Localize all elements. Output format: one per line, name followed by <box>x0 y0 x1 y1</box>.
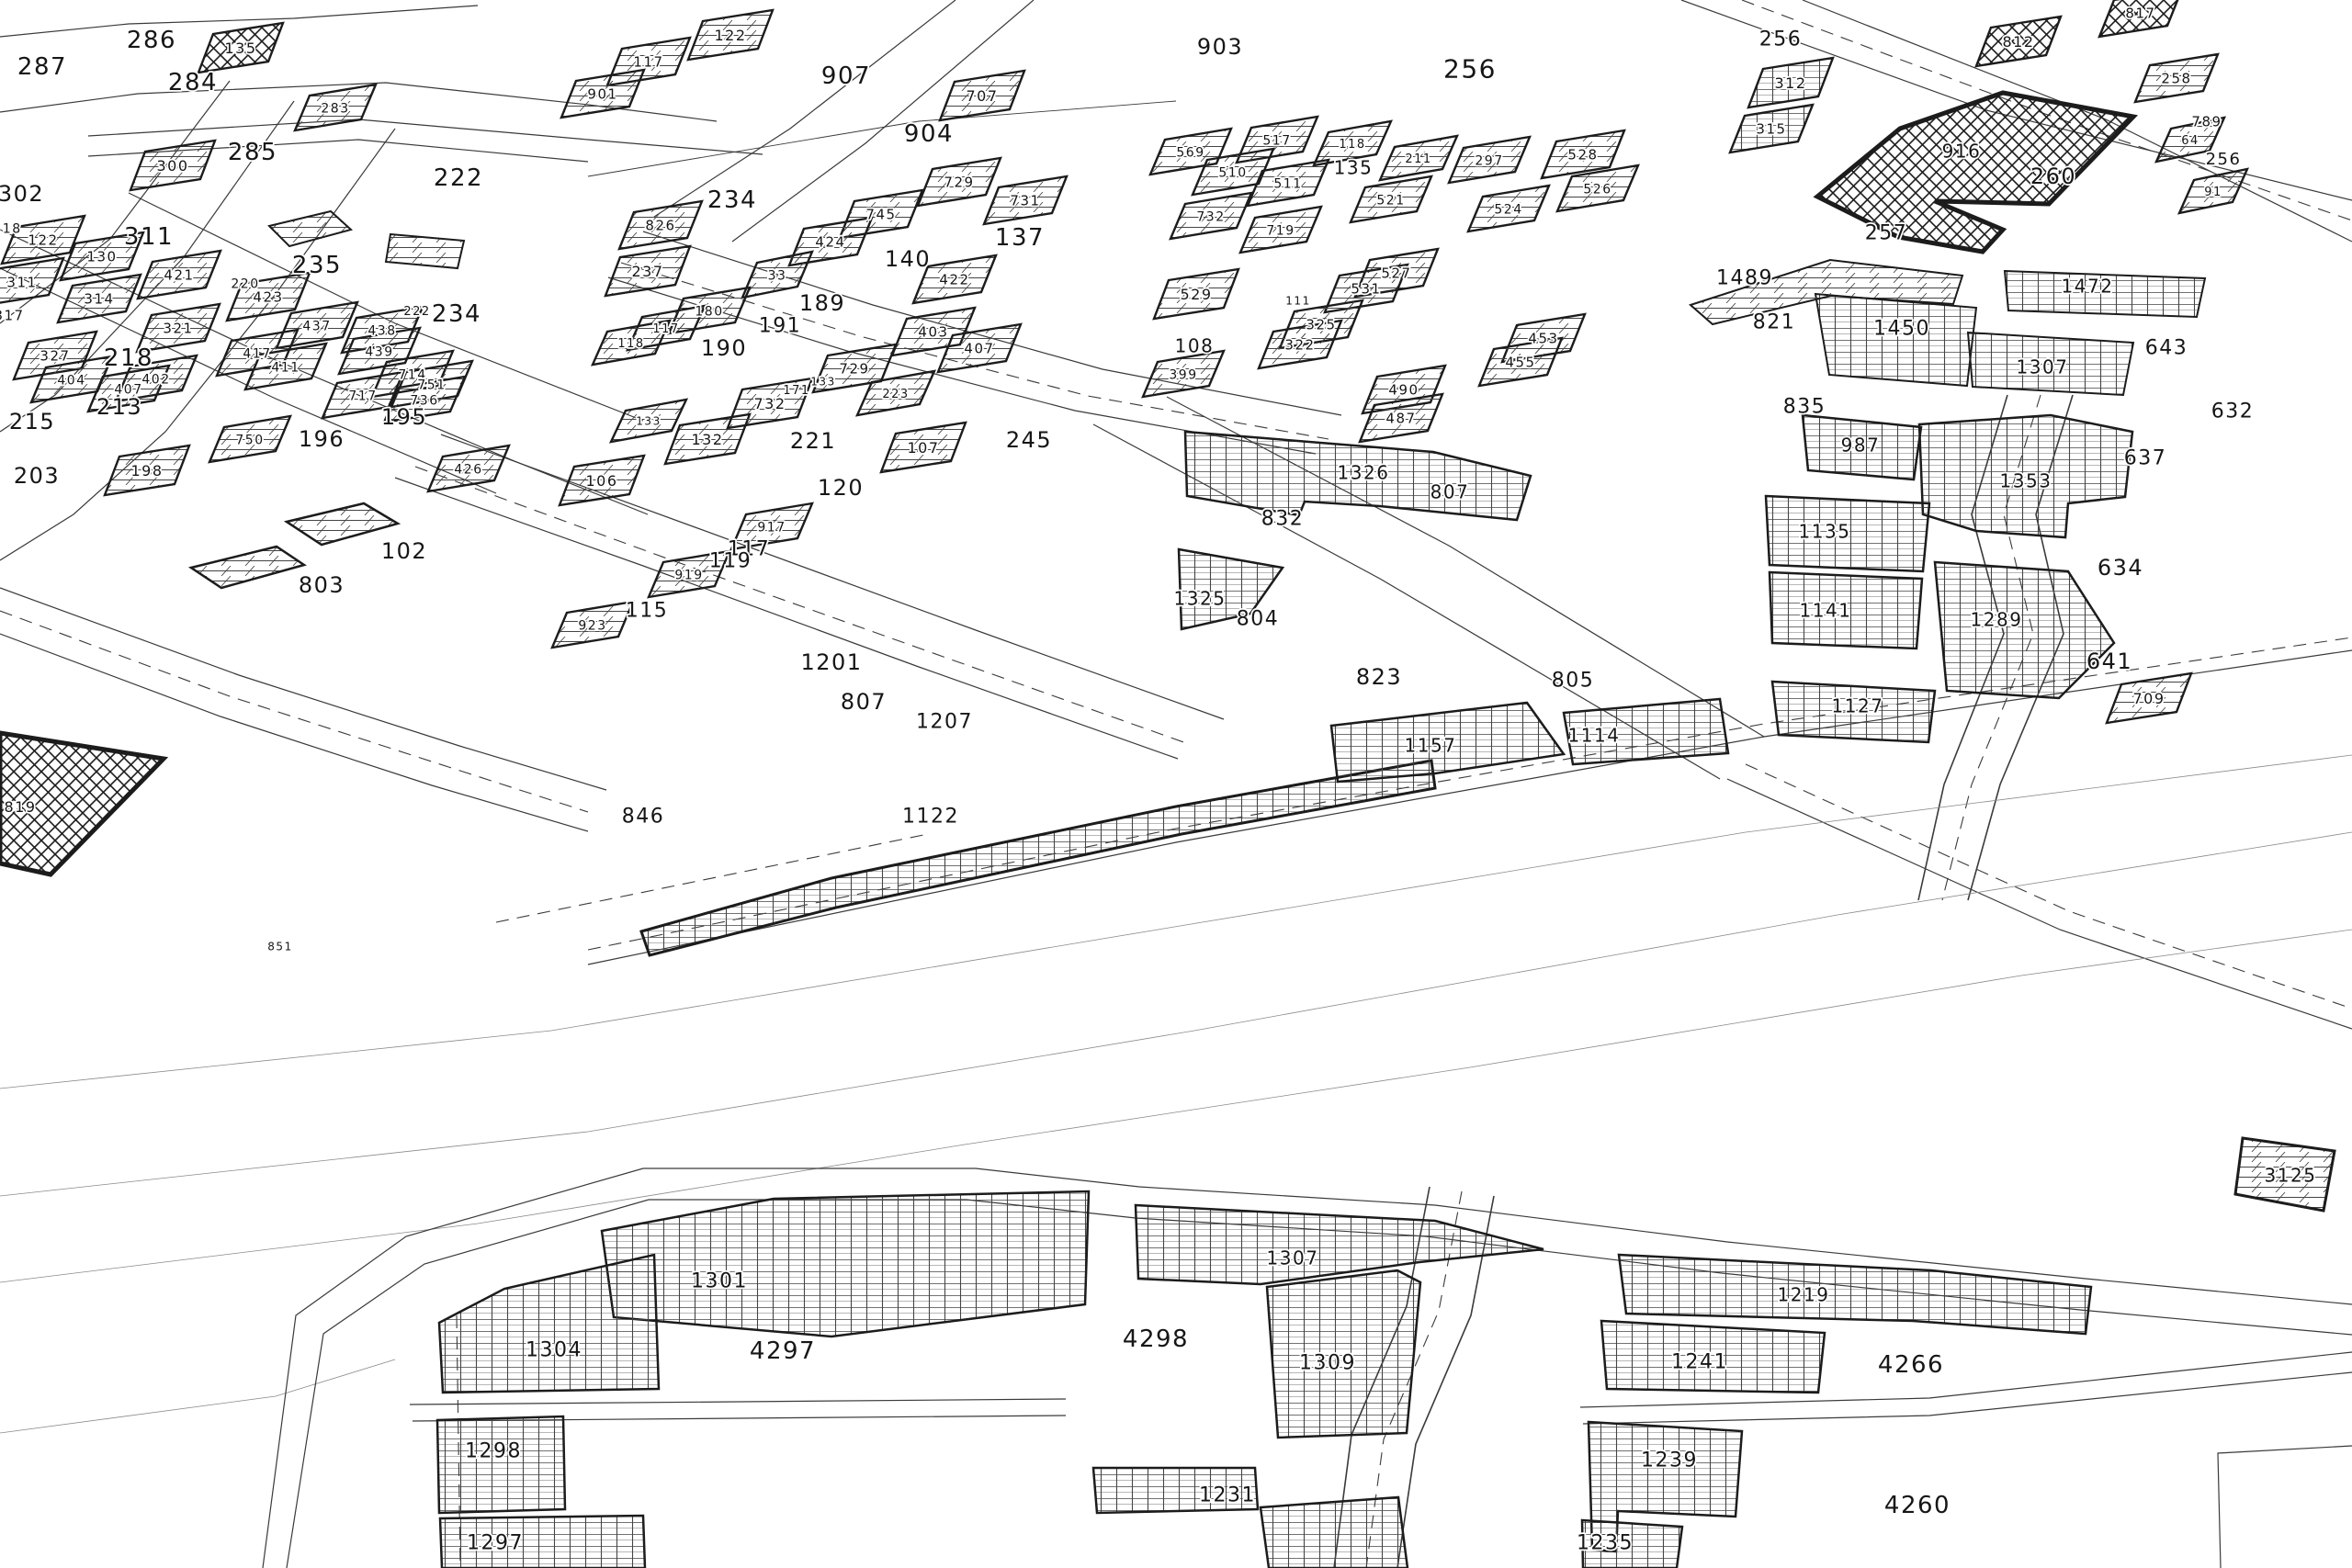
parcel-label: 907 <box>821 62 871 90</box>
parcel-label: 64 <box>2181 134 2199 148</box>
parcel-label: 4260 <box>1884 1492 1951 1519</box>
parcel-label: 421 <box>164 267 194 284</box>
parcel-label: 3125 <box>2265 1165 2317 1187</box>
parcel-shape <box>1935 562 2114 698</box>
parcel-label: 527 <box>1381 265 1411 282</box>
parcel-label: 745 <box>865 207 896 223</box>
parcel-label: 1157 <box>1405 735 1457 757</box>
parcel-label: 826 <box>645 218 675 234</box>
road-line <box>410 1399 1066 1404</box>
parcel-label: 311 <box>6 275 37 291</box>
parcel-label: 1207 <box>916 710 973 733</box>
parcel-label: 222 <box>403 305 430 319</box>
parcel-label: 916 <box>1942 141 1982 163</box>
parcel-label: 189 <box>799 290 845 316</box>
parcel-label: 91 <box>2204 186 2222 199</box>
parcel-shape <box>641 761 1435 955</box>
parcel-label: 437 <box>302 319 331 333</box>
parcel-label: 117 <box>652 322 679 336</box>
parcel-label: 424 <box>815 234 845 251</box>
parcel-label: 403 <box>918 324 948 341</box>
parcel-label: 302 <box>0 181 44 207</box>
parcel-label: 569 <box>1176 145 1204 160</box>
parcel-shape <box>439 1255 659 1393</box>
parcel-label: 511 <box>1273 176 1302 191</box>
parcel-shape <box>437 1416 565 1513</box>
parcel-label: 835 <box>1783 395 1826 418</box>
parcel-label: 300 <box>156 157 188 175</box>
road-line <box>588 101 1176 176</box>
parcel-label: 327 <box>40 348 70 365</box>
parcel-label: 106 <box>585 472 617 490</box>
parcel-label: 510 <box>1218 165 1247 180</box>
parcel-label: 707 <box>966 87 998 105</box>
parcel-label: 107 <box>907 439 939 457</box>
parcel-label: 1326 <box>1338 462 1390 484</box>
parcel-label: 135 <box>1334 157 1374 179</box>
parcel-label: 729 <box>839 361 869 378</box>
parcel-label: 102 <box>381 538 427 564</box>
parcel-shape <box>1619 1255 2091 1334</box>
parcel-label: 1241 <box>1671 1350 1728 1373</box>
parcel-label: 315 <box>1756 121 1786 138</box>
parcel-label: 260 <box>2030 164 2076 189</box>
parcel-label: 717 <box>348 389 377 403</box>
parcel-label: 987 <box>1841 434 1881 457</box>
parcel-label: 455 <box>1505 355 1535 371</box>
parcel-label: 171 <box>783 384 809 398</box>
parcel-label: 709 <box>2132 690 2165 707</box>
parcel-label: 1141 <box>1800 600 1852 622</box>
parcel-label: 130 <box>86 249 117 265</box>
parcel-label: 234 <box>432 300 481 328</box>
parcel-label: 115 <box>626 599 669 622</box>
parcel-label: 1307 <box>2017 356 2069 378</box>
parcel-label: 4266 <box>1878 1351 1944 1379</box>
parcel-label: 191 <box>759 314 802 337</box>
parcel-label: 257 <box>1865 221 1908 244</box>
parcel-label: 287 <box>17 53 67 81</box>
parcel-label: 286 <box>127 27 176 54</box>
parcel-label: 198 <box>130 462 163 479</box>
parcel-label: 821 <box>1753 310 1796 333</box>
parcel-label: 426 <box>454 462 482 477</box>
parcel-label: 732 <box>1196 209 1225 224</box>
parcel-label: 807 <box>1430 481 1470 503</box>
parcel-label: 1325 <box>1174 588 1227 610</box>
parcel-label: 399 <box>1169 367 1197 382</box>
cadastral-map[interactable]: 2861352872842832853002223021181223111304… <box>0 0 2352 1568</box>
parcel-label: 284 <box>168 69 218 96</box>
contour-line <box>0 755 2352 1089</box>
parcel-label: 1289 <box>1971 609 2023 631</box>
parcel-label: 1298 <box>465 1439 522 1462</box>
parcel-label: 314 <box>84 291 114 308</box>
parcel-label: 422 <box>939 272 969 288</box>
parcel-label: 312 <box>1774 74 1806 92</box>
parcel-label: 732 <box>753 395 786 412</box>
parcel-label: 122 <box>28 232 58 249</box>
parcel-label: 1489 <box>1716 266 1773 289</box>
parcel-label: 221 <box>790 428 836 454</box>
parcel-label: 529 <box>1180 286 1212 303</box>
parcel-label: 524 <box>1494 202 1522 217</box>
parcel-label: 317 <box>0 308 25 324</box>
parcel-label: 487 <box>1385 411 1416 427</box>
map-canvas: 2861352872842832853002223021181223111304… <box>0 0 2352 1568</box>
parcel-label: 1219 <box>1778 1284 1830 1306</box>
parcel-shape <box>386 234 464 268</box>
parcel-label: 641 <box>2086 649 2132 674</box>
parcel-label: 1239 <box>1641 1449 1698 1472</box>
parcel-label: 1309 <box>1299 1351 1356 1374</box>
parcel-label: 528 <box>1567 147 1598 164</box>
parcel-label: 917 <box>757 520 786 535</box>
parcel-label: 321 <box>163 321 193 337</box>
parcel-label: 731 <box>1010 193 1040 209</box>
parcel-label: 1235 <box>1577 1531 1634 1554</box>
parcel-label: 904 <box>904 120 954 148</box>
parcel-label: 215 <box>9 409 55 434</box>
parcel-label: 132 <box>691 431 723 448</box>
parcel-label: 140 <box>885 246 931 272</box>
parcel-label: 1307 <box>1267 1247 1319 1269</box>
parcel-label: 903 <box>1197 34 1243 60</box>
parcel-shape <box>602 1191 1089 1337</box>
parcel-label: 1114 <box>1568 725 1621 747</box>
parcel-label: 234 <box>707 186 757 214</box>
parcel-label: 256 <box>1759 28 1803 51</box>
parcel-label: 517 <box>1262 133 1291 148</box>
parcel-label: 180 <box>695 304 723 319</box>
parcel-label: 1127 <box>1832 695 1884 717</box>
parcel-label: 1472 <box>2062 276 2114 298</box>
parcel-label: 297 <box>1475 153 1503 168</box>
parcel-label: 4298 <box>1123 1325 1189 1353</box>
parcel-label: 643 <box>2145 336 2188 359</box>
parcel-label: 439 <box>365 344 393 359</box>
road-line <box>2218 1446 2352 1568</box>
parcel-label: 322 <box>1284 337 1315 354</box>
parcel-label: 751 <box>417 378 446 392</box>
parcel-label: 133 <box>810 376 835 389</box>
parcel-shape <box>1136 1205 1543 1284</box>
parcel-label: 285 <box>228 139 277 166</box>
parcel-label: 223 <box>882 388 909 401</box>
parcel-label: 1231 <box>1199 1483 1256 1506</box>
parcel-label: 807 <box>841 689 887 715</box>
parcel-label: 411 <box>271 360 300 375</box>
parcel-label: 407 <box>964 341 994 357</box>
parcel-label: 526 <box>1583 182 1611 197</box>
parcel-label: 118 <box>0 221 22 236</box>
parcel-label: 120 <box>818 475 864 501</box>
parcel-shape <box>191 547 304 588</box>
parcel-label: 789 <box>2191 114 2222 130</box>
parcel-label: 901 <box>587 86 617 103</box>
parcel-label: 222 <box>434 164 483 192</box>
parcel-label: 819 <box>4 798 36 816</box>
parcel-label: 311 <box>124 223 174 251</box>
parcel-label: 118 <box>1339 138 1365 152</box>
parcel-label: 1297 <box>467 1531 524 1554</box>
parcel-label: 256 <box>1443 54 1497 85</box>
parcel-label: 919 <box>674 568 703 582</box>
parcel-label: 531 <box>1351 281 1381 298</box>
parcel-label: 1301 <box>691 1269 748 1292</box>
parcel-label: 521 <box>1376 193 1405 208</box>
parcel-label: 812 <box>2002 33 2034 51</box>
parcel-label: 1122 <box>902 805 959 828</box>
parcel-label: 33 <box>768 268 787 283</box>
parcel-label: 137 <box>995 224 1045 252</box>
parcel-label: 1304 <box>526 1338 582 1361</box>
parcel-label: 1135 <box>1799 521 1851 543</box>
parcel-label: 111 <box>1285 295 1310 308</box>
parcel-label: 803 <box>299 572 345 598</box>
parcel-label: 804 <box>1237 607 1280 630</box>
parcel-label: 1353 <box>2000 470 2052 492</box>
parcel-label: 283 <box>321 101 349 116</box>
parcel-label: 258 <box>2161 71 2191 87</box>
parcel-label: 750 <box>235 433 264 447</box>
parcel-label: 122 <box>714 27 746 44</box>
parcel-label: 417 <box>243 346 271 361</box>
parcel-label: 108 <box>1175 335 1215 357</box>
parcel-label: 211 <box>1405 152 1431 166</box>
parcel-label: 453 <box>1528 331 1558 347</box>
parcel-label: 4297 <box>750 1337 816 1365</box>
parcel-label: 117 <box>633 54 663 71</box>
parcel-shape <box>269 211 351 246</box>
contour-line <box>0 1359 395 1433</box>
parcel-label: 719 <box>1266 223 1295 238</box>
parcel-label: 634 <box>2098 555 2143 581</box>
parcel-label: 213 <box>96 394 142 420</box>
parcel-label: 404 <box>57 373 85 388</box>
parcel-label: 817 <box>2125 6 2155 22</box>
parcel-label: 237 <box>631 263 663 280</box>
parcel-label: 235 <box>292 252 342 279</box>
parcel-label: 729 <box>944 175 974 191</box>
parcel-label: 823 <box>1356 664 1402 690</box>
parcel-label: 923 <box>578 618 606 633</box>
parcel-label: 256 <box>2206 150 2242 169</box>
parcel-label: 119 <box>709 549 752 572</box>
parcel-label: 490 <box>1388 382 1419 399</box>
parcel-label: 637 <box>2124 446 2167 469</box>
road-line <box>1727 779 2352 1029</box>
parcel-label: 1450 <box>1873 317 1930 340</box>
parcel-label: 402 <box>141 372 170 387</box>
parcel-label: 245 <box>1006 427 1052 453</box>
parcel-label: 851 <box>267 941 292 953</box>
parcel-label: 438 <box>367 323 396 338</box>
parcel-label: 1201 <box>800 649 862 675</box>
parcel-label: 423 <box>253 289 283 306</box>
parcel-label: 133 <box>636 415 661 428</box>
parcel-label: 135 <box>224 39 256 57</box>
parcel-label: 190 <box>701 335 747 361</box>
parcel-label: 632 <box>2211 400 2255 423</box>
parcel-label: 195 <box>381 404 427 430</box>
contour-line <box>0 832 2352 1196</box>
parcel-label: 118 <box>617 337 644 351</box>
parcel-label: 203 <box>14 463 60 489</box>
parcel-label: 218 <box>104 344 153 372</box>
parcel-label: 846 <box>622 805 665 828</box>
parcel-label: 196 <box>299 426 345 452</box>
parcel-shape <box>1261 1497 1408 1568</box>
parcel-label: 325 <box>1306 317 1336 333</box>
parcel-label: 805 <box>1552 669 1595 692</box>
parcel-label: 832 <box>1261 507 1305 530</box>
